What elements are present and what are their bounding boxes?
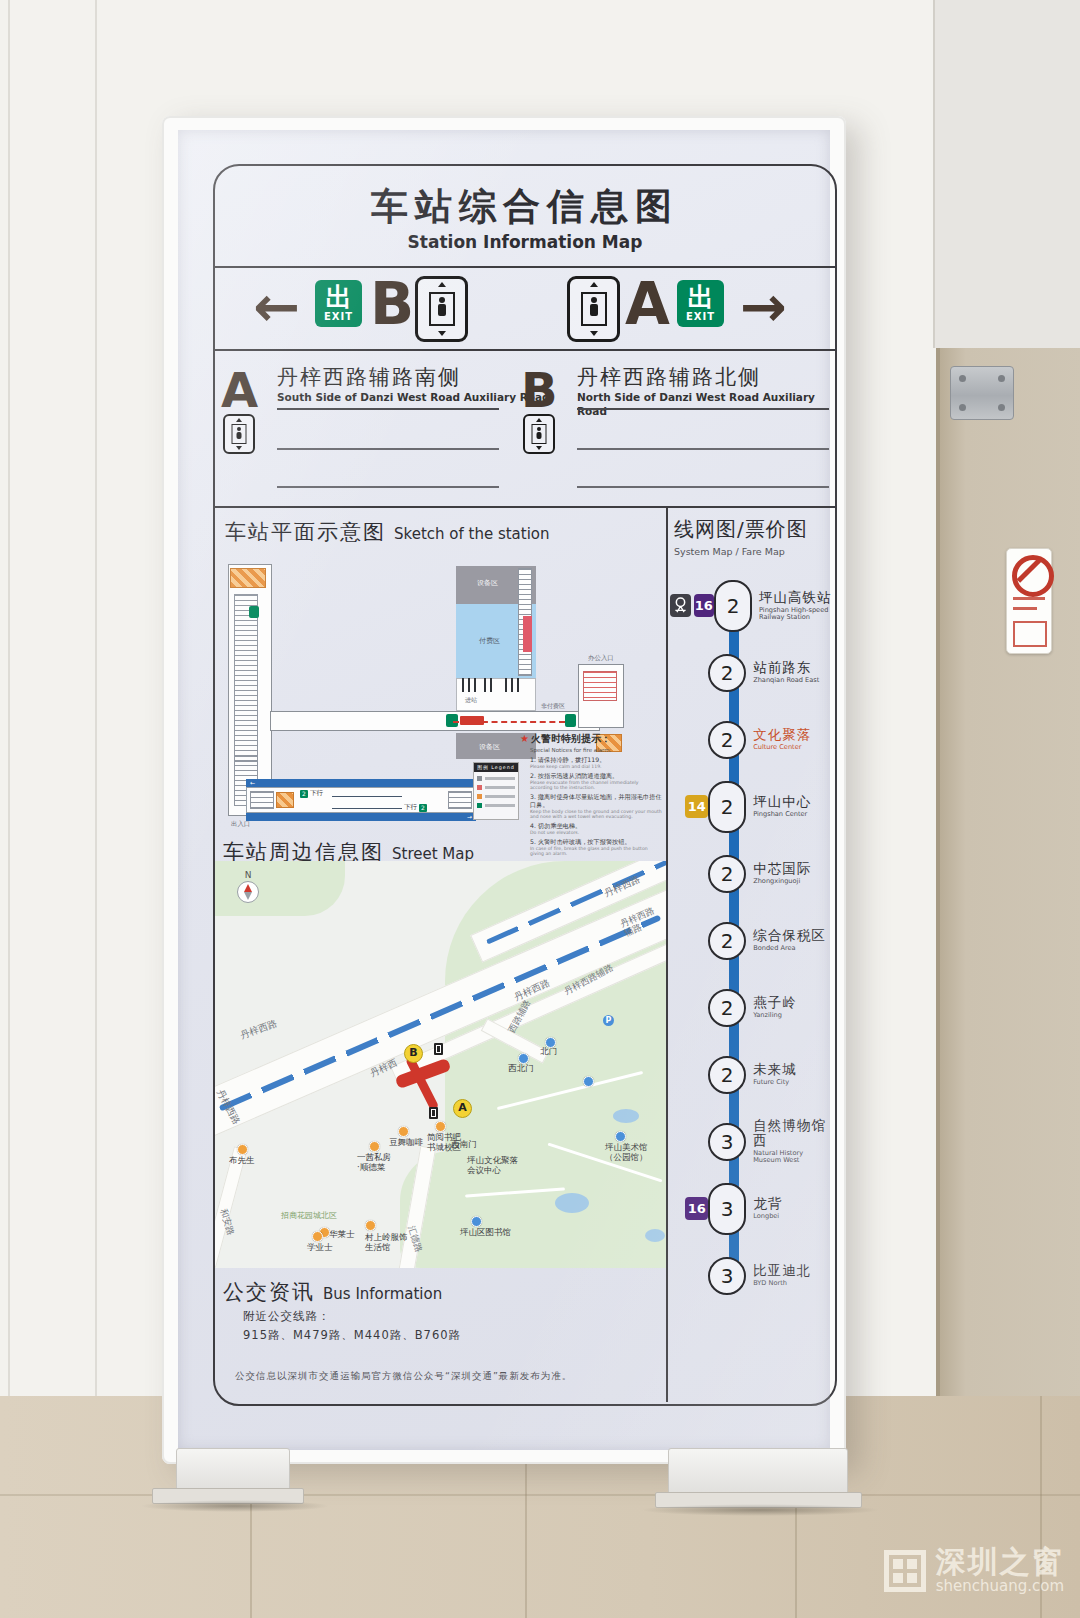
station-name-cn: 龙背 (753, 1196, 833, 1211)
fare-zone-node: 2 (708, 721, 746, 759)
map-label: P (603, 1015, 616, 1026)
stairs (234, 594, 258, 806)
map-label: 华莱士 (329, 1230, 355, 1240)
station-name-en: Future City (753, 1079, 833, 1086)
fire-notice-item: 5. 火警时击碎玻璃，按下报警按钮。 In case of fire, brea… (530, 838, 662, 857)
map-label (435, 1121, 448, 1132)
station-name-en: Zhongxinguoji (753, 878, 833, 885)
fare-zone-node: 2 (708, 781, 746, 833)
station-name-en: Pingshan Center (753, 811, 833, 818)
fire-notice-item: 2. 按指示迅速从消防通道撤离。 Please evacuate from th… (530, 772, 662, 791)
escalator-box (230, 568, 266, 588)
station-name-cn: 综合保税区 (753, 928, 833, 943)
poi-icon (518, 1053, 529, 1064)
watermark: 深圳之窗 shenchuang.com (884, 1547, 1064, 1597)
bus-routes: 915路、M479路、M440路、B760路 (243, 1328, 461, 1343)
platform-level-diagram: ← → 2下行 下行2 (246, 779, 476, 821)
line-map-station: 2 燕子岭 Yanziling (670, 974, 833, 1041)
line-map-station: 14 2 坪山中心 Pingshan Center (670, 773, 833, 840)
line-map-station: 2 站前路东 Zhanqian Road East (670, 639, 833, 706)
elevator-icon (415, 276, 468, 342)
map-label (365, 1220, 378, 1231)
map-label (398, 1126, 411, 1137)
map-label: 村上岭服饰 生活馆 (365, 1233, 408, 1253)
stairs (448, 791, 472, 809)
map-label: 豆舞咖啡 (389, 1138, 423, 1148)
watermark-en: shenchuang.com (936, 1577, 1064, 1597)
poi-icon (471, 1216, 482, 1227)
poi-icon (369, 1141, 380, 1152)
station-name-en: Culture Center (753, 744, 833, 751)
station-name-en: Bonded Area (753, 945, 833, 952)
area-label: 出入口 (231, 820, 251, 829)
map-exit-a: A (453, 1099, 472, 1118)
bus-nearby-label: 附近公交线路： (243, 1309, 331, 1324)
china-railway-icon (670, 594, 691, 617)
station-label: 综合保税区 Bonded Area (753, 928, 833, 952)
exit-b-road-en: North Side of Danzi West Road Auxiliary … (577, 390, 835, 418)
wall-upper-right (933, 0, 1080, 348)
window-logo-icon (884, 1550, 926, 1592)
map-label: 坪山文化聚落 会议中心 (467, 1156, 518, 1176)
station-name-cn: 站前路东 (753, 660, 833, 675)
poi-icon (312, 1231, 323, 1242)
station-badges: 16 (670, 1197, 708, 1220)
fare-zone-node: 3 (708, 1183, 746, 1235)
line-map-station: 2 综合保税区 Bonded Area (670, 907, 833, 974)
fire-notice-item: 3. 撤离时使身体尽量贴近地面，并用湿毛巾捂住口鼻。 Keep the body… (530, 793, 662, 820)
area-label: 非付费区 (541, 702, 565, 711)
exit-direction-bar: ← 出 EXIT B A 出 EXIT (215, 266, 835, 349)
wall-seam (95, 0, 97, 1396)
station-name-cn: 坪山高铁站 (759, 590, 833, 605)
exit-marker (249, 606, 259, 618)
exit-badge: 出 EXIT (315, 280, 362, 327)
elevator-icon (523, 414, 555, 454)
map-label (518, 1053, 531, 1064)
line-map: 16 2 坪山高铁站 Pingshan High-speed Railway S… (670, 572, 833, 1309)
exit-letter-b: B (370, 268, 414, 340)
map-label (615, 1131, 628, 1142)
station-name-cn: 比亚迪北 (753, 1263, 833, 1278)
escalator-box (276, 792, 294, 808)
sign-content: 车站综合信息图 Station Information Map ← 出 EXIT… (213, 164, 837, 1406)
station-label: 中芯国际 Zhongxinguoji (753, 861, 833, 885)
fare-zone-node: 2 (708, 1056, 746, 1094)
fare-zone-node: 2 (708, 922, 746, 960)
map-label: 招商花园城北区 (281, 1211, 337, 1220)
exit-a-letter: A (221, 362, 258, 418)
line-map-station: 16 2 坪山高铁站 Pingshan High-speed Railway S… (670, 572, 833, 639)
parking-icon: P (603, 1015, 614, 1026)
sketch-section-title: 车站平面示意图Sketch of the station (225, 518, 550, 546)
poi-icon (615, 1131, 626, 1142)
exit-b-letter: B (521, 362, 558, 418)
stairs (583, 671, 617, 701)
line-map-station: 3 比亚迪北 BYD North (670, 1242, 833, 1309)
line-map-station: 2 未来城 Future City (670, 1041, 833, 1108)
zone-badge: 2 (300, 790, 308, 798)
station-label: 坪山高铁站 Pingshan High-speed Railway Statio… (759, 590, 833, 621)
door (936, 348, 1080, 1396)
compass: N (237, 881, 259, 903)
station-name-en: Natural History Museum West (753, 1150, 833, 1165)
sketch-legend: 图例 Legend (473, 762, 519, 820)
line-map-station: 16 3 龙背 Longbei (670, 1175, 833, 1242)
down-direction-label: 下行 (404, 803, 417, 812)
fire-alarm-notice: ★火警时特别提示： Special Notices for fire alarm… (520, 732, 662, 859)
stairs (250, 791, 274, 809)
fare-zone-node: 2 (708, 654, 746, 692)
station-name-en: Pingshan High-speed Railway Station (759, 607, 833, 622)
elevator-icon (429, 1107, 438, 1119)
station-label: 文化聚落 Culture Center (753, 727, 833, 751)
elevator-icon (434, 1043, 443, 1055)
exit-a-road-cn: 丹梓西路辅路南侧 (277, 364, 550, 390)
station-name-cn: 自然博物馆西 (753, 1118, 833, 1148)
wall-seam (8, 0, 10, 1396)
map-exit-b: B (404, 1044, 423, 1063)
platform-direction-bottom: → (246, 813, 476, 821)
station-name-cn: 燕子岭 (753, 995, 833, 1010)
map-label: 学业士 (307, 1243, 333, 1253)
poi-icon (365, 1220, 376, 1231)
station-label: 燕子岭 Yanziling (753, 995, 833, 1019)
map-label: 布先生 (229, 1156, 255, 1166)
line-14-badge: 14 (685, 795, 708, 818)
page-title-en: Station Information Map (215, 232, 835, 252)
zone-badge: 2 (419, 804, 427, 812)
exit-a-road-en: South Side of Danzi West Road Auxiliary … (277, 390, 550, 404)
exit-letter-a: A (625, 268, 670, 340)
line-map-station: 2 中芯国际 Zhongxinguoji (670, 840, 833, 907)
lake (645, 1229, 665, 1242)
station-badges: 14 (670, 795, 708, 818)
map-label (471, 1216, 484, 1227)
station-name-en: Yanziling (753, 1012, 833, 1019)
fare-zone-node: 2 (708, 989, 746, 1027)
park-area (215, 861, 345, 916)
station-label: 坪山中心 Pingshan Center (753, 794, 833, 818)
area-label: 办公入口 (588, 654, 614, 663)
fare-zone-node: 2 (714, 580, 752, 632)
exit-b-road-cn: 丹梓西路辅路北侧 (577, 364, 835, 390)
bus-info-section-title: 公交资讯Bus Information (223, 1278, 442, 1306)
photo-scene: 车站综合信息图 Station Information Map ← 出 EXIT… (0, 0, 1080, 1618)
station-name-cn: 中芯国际 (753, 861, 833, 876)
map-label (545, 1037, 558, 1048)
map-label: 一茜私房 ·顺德菜 (357, 1153, 391, 1173)
fare-zone-node: 2 (708, 855, 746, 893)
sign-panel: 车站综合信息图 Station Information Map ← 出 EXIT… (178, 130, 830, 1450)
poi-icon (398, 1126, 409, 1137)
station-name-en: BYD North (753, 1280, 833, 1287)
poi-icon (545, 1037, 556, 1048)
elevator-icon (223, 414, 255, 454)
map-label: 丹梓西路 (239, 1018, 278, 1041)
elevator-icon (567, 276, 620, 342)
map-label: 西北门 (508, 1064, 534, 1074)
exit-marker (565, 714, 576, 727)
line-map-station: 2 文化聚落 Culture Center (670, 706, 833, 773)
station-label: 站前路东 Zhanqian Road East (753, 660, 833, 684)
area-label: 设备区 (479, 742, 500, 752)
door-hinge (950, 366, 1014, 420)
fire-notice-item: 4. 切勿乘坐电梯。 Do not use elevators. (530, 822, 662, 835)
station-label: 比亚迪北 BYD North (753, 1263, 833, 1287)
lake (555, 1193, 589, 1213)
platform-direction-top: ← (246, 779, 476, 787)
poi-icon (583, 1076, 594, 1087)
fare-zone-node: 3 (708, 1123, 746, 1161)
fire-alarm-notice-items: 1. 请保持冷静，拨打119。 Please keep calm and dia… (520, 756, 662, 857)
station-label: 龙背 Longbei (753, 1196, 833, 1220)
sign-board: 车站综合信息图 Station Information Map ← 出 EXIT… (162, 116, 846, 1464)
map-label: 坪山美术馆 （公园馆） (605, 1143, 648, 1163)
right-arrow-icon: → (740, 272, 787, 342)
watermark-cn: 深圳之窗 (936, 1544, 1064, 1579)
station-name-en: Longbei (753, 1213, 833, 1220)
station-sketch-diagram: 设备区 付费区 进站 非付费区 设备区 办公入口 出入口 ★火警时特别提示： S… (215, 556, 666, 838)
lake (613, 1109, 639, 1123)
station-badges: 16 (670, 594, 714, 617)
page-title-cn: 车站综合信息图 (215, 182, 835, 232)
poi-icon (435, 1121, 446, 1132)
footer-note: 公交信息以深圳市交通运输局官方微信公众号“深圳交通”最新发布为准。 (235, 1370, 572, 1383)
exit-badge: 出 EXIT (677, 280, 724, 327)
map-label (237, 1144, 250, 1155)
left-arrow-icon: ← (253, 272, 300, 342)
map-label (369, 1141, 382, 1152)
map-label (583, 1076, 596, 1087)
station-label: 未来城 Future City (753, 1062, 833, 1086)
map-label: 北门 (540, 1047, 557, 1057)
street-map: B A N 丹梓西路丹梓西路辅路丹梓西路丹梓西路辅路西路辅路丹梓西丹梓西路丹梓西… (215, 861, 666, 1268)
escalator-red-marker (523, 616, 532, 652)
area-label: 进站 (465, 696, 477, 705)
fire-notice-item: 1. 请保持冷静，拨打119。 Please keep calm and dia… (530, 756, 662, 769)
line-16-badge: 16 (694, 594, 715, 617)
map-label: 简阅书吧 书城校区 (427, 1133, 461, 1153)
station-name-cn: 文化聚落 (753, 727, 833, 742)
system-map-section-title: 线网图/票价图 System Map / Fare Map (674, 516, 808, 557)
station-name-en: Zhanqian Road East (753, 677, 833, 684)
sign-foot-right (668, 1448, 848, 1498)
station-label: 自然博物馆西 Natural History Museum West (753, 1118, 833, 1164)
station-name-cn: 未来城 (753, 1062, 833, 1077)
area-label: 设备区 (477, 578, 498, 588)
map-label (312, 1231, 325, 1242)
red-asterisk-icon: ★ (520, 733, 529, 744)
poi-icon (237, 1144, 248, 1155)
line-16-badge: 16 (685, 1197, 708, 1220)
map-label: 坪山区图书馆 (460, 1228, 511, 1238)
area-label: 付费区 (479, 636, 500, 646)
fare-zone-node: 3 (708, 1257, 746, 1295)
line-map-station: 3 自然博物馆西 Natural History Museum West (670, 1108, 833, 1175)
down-direction-label: 下行 (310, 789, 323, 798)
prohibition-sign (1006, 548, 1052, 654)
station-name-cn: 坪山中心 (753, 794, 833, 809)
evacuation-route-tag (460, 716, 484, 725)
